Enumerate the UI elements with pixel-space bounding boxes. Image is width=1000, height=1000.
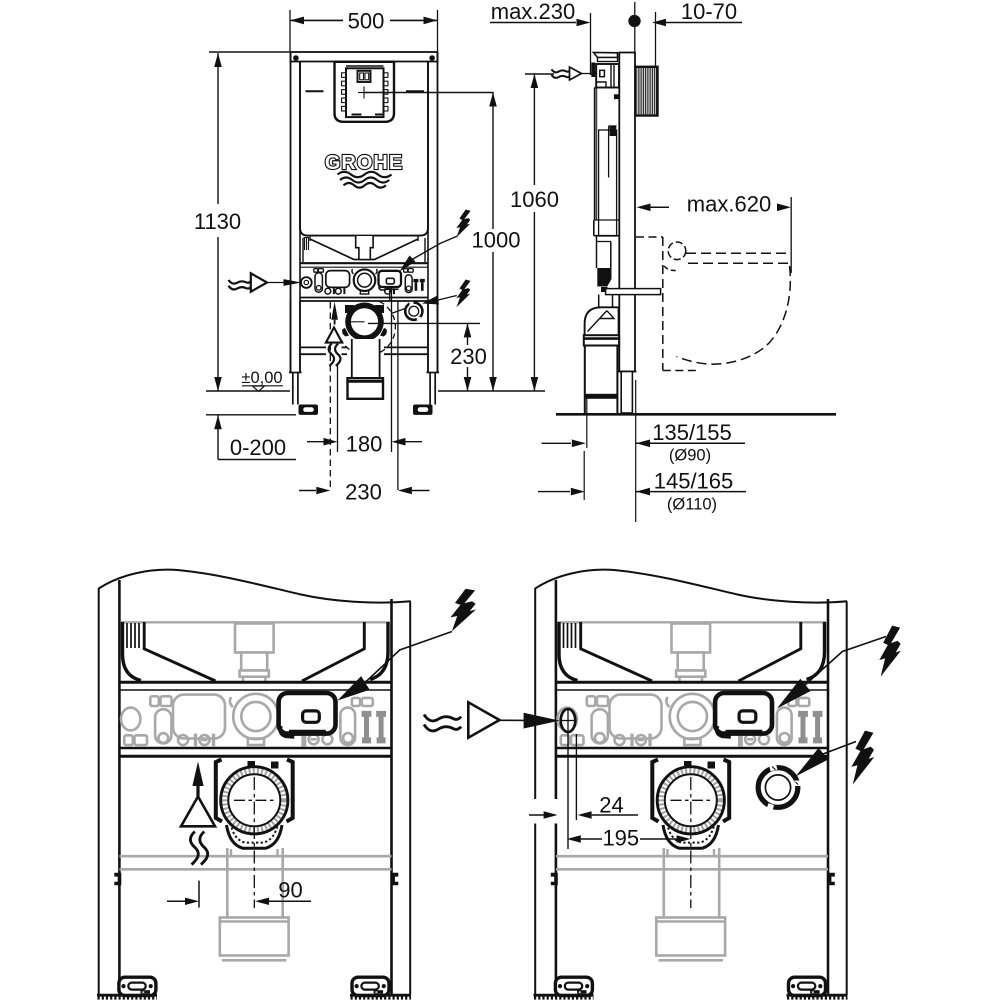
svg-text:1060: 1060 <box>510 187 559 212</box>
svg-text:±0,00: ±0,00 <box>241 369 282 387</box>
svg-text:GROHE: GROHE <box>325 152 403 174</box>
svg-text:135/155: 135/155 <box>652 420 732 445</box>
svg-text:180: 180 <box>346 432 383 457</box>
svg-text:1000: 1000 <box>472 228 521 253</box>
svg-text:230: 230 <box>450 344 487 369</box>
svg-text:230: 230 <box>345 480 382 505</box>
svg-text:max.620: max.620 <box>687 192 771 217</box>
svg-text:max.230: max.230 <box>491 0 575 24</box>
svg-text:145/165: 145/165 <box>654 469 734 494</box>
svg-text:0-200: 0-200 <box>230 435 286 460</box>
svg-text:(Ø90): (Ø90) <box>669 447 711 465</box>
svg-text:10-70: 10-70 <box>681 0 737 24</box>
svg-text:500: 500 <box>348 9 385 34</box>
svg-text:90: 90 <box>278 878 302 903</box>
svg-text:24: 24 <box>599 793 623 818</box>
svg-text:1130: 1130 <box>194 209 241 234</box>
svg-text:195: 195 <box>602 826 639 851</box>
svg-text:(Ø110): (Ø110) <box>667 496 717 514</box>
